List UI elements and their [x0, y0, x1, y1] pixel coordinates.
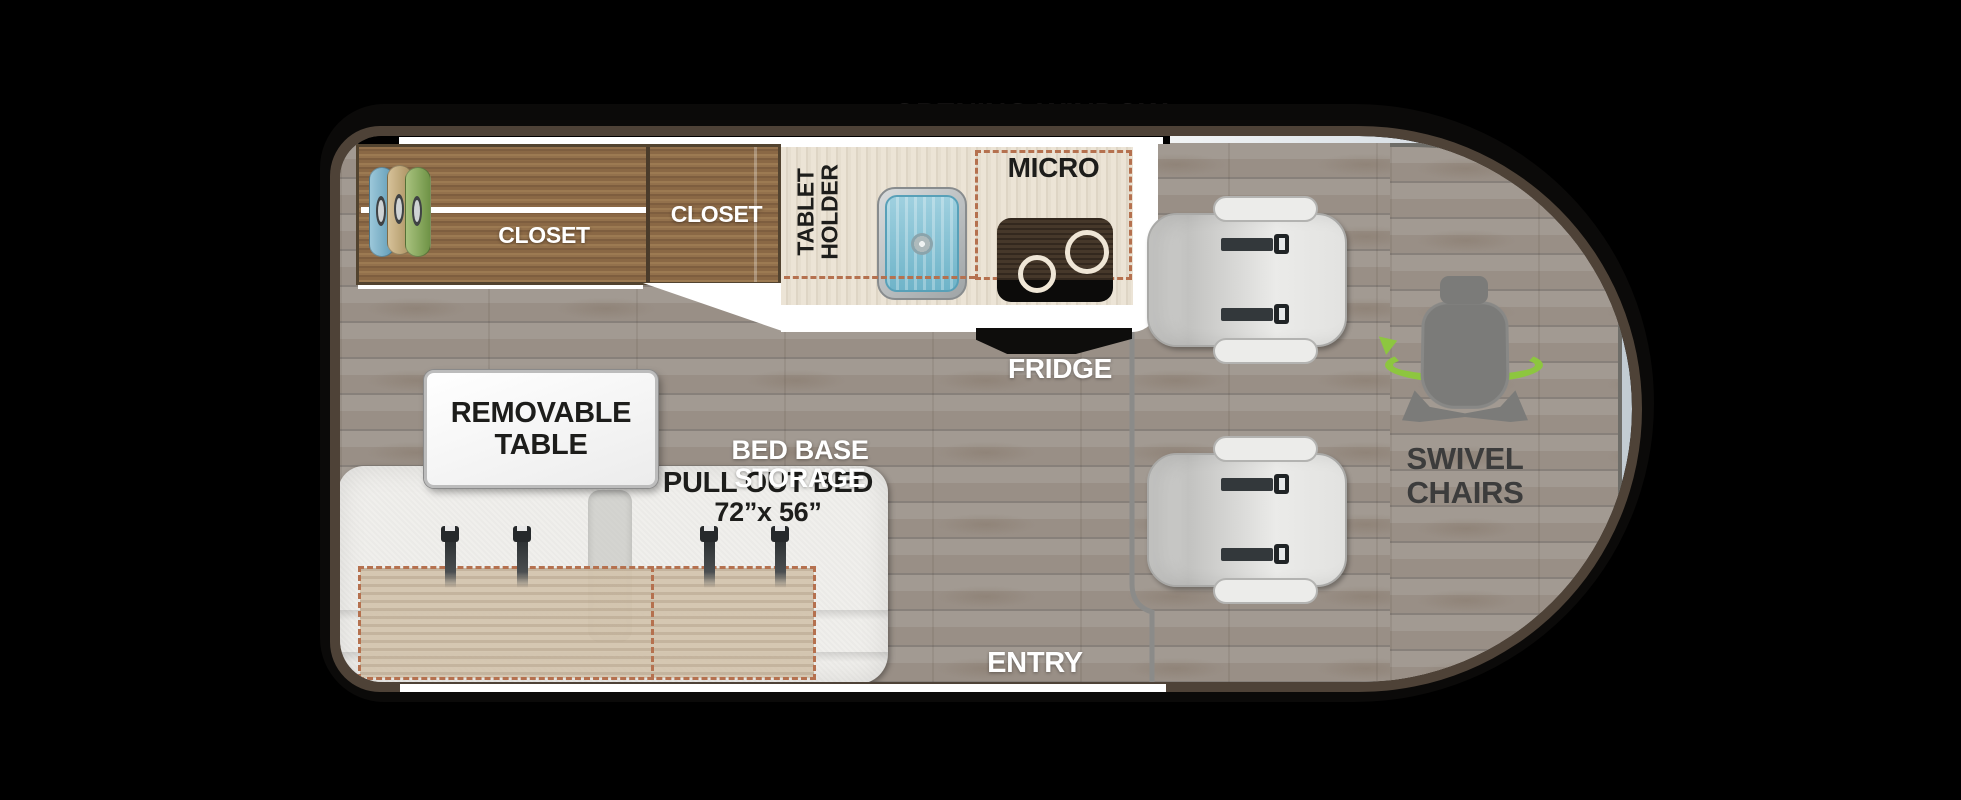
swivel-chairs-line1: SWIVEL [1390, 442, 1540, 476]
seatbelt-strap-icon [1221, 238, 1273, 251]
removable-table-sign: REMOVABLE TABLE [424, 370, 658, 488]
seatbelt-strap-icon [704, 542, 715, 588]
cab-seat [1147, 194, 1353, 366]
bed-base-storage-label: BED BASE STORAGE [665, 436, 935, 493]
floorplan-stage: OPENING WINDOW CLOSET [0, 0, 1961, 800]
counter-edge-dashed-line [784, 276, 975, 279]
seatbelt-strap-icon [517, 542, 528, 588]
seatbelt-icon [513, 523, 531, 588]
hanger-slot-icon [412, 196, 422, 226]
pull-out-bed: PULL OUT BED 72”x 56” [340, 466, 888, 682]
seat-armrest [1213, 338, 1318, 364]
entry-label: ENTRY [970, 648, 1100, 678]
table-sign-line2: TABLE [451, 429, 631, 461]
cooktop [997, 218, 1113, 302]
cooktop-front-panel [997, 280, 1113, 302]
cab-seat [1147, 434, 1353, 606]
swivel-chairs-label: SWIVEL CHAIRS [1390, 442, 1540, 510]
hanger-slot-icon [394, 194, 404, 224]
seatbelt-buckle-icon [700, 526, 718, 542]
closet-cabinet: CLOSET CLOSET [356, 144, 781, 285]
seat-armrest [1213, 436, 1318, 462]
bed-extension-dashed-outline [358, 566, 816, 680]
sink [877, 187, 967, 300]
seatbelt-icon [1221, 304, 1293, 324]
seat-armrest [1213, 196, 1318, 222]
seatbelt-buckle-icon [1274, 234, 1289, 254]
seatbelt-buckle-icon [1274, 304, 1289, 324]
seat-armrest [1213, 578, 1318, 604]
opening-window-strip [399, 137, 1163, 144]
burner-icon [1065, 230, 1109, 274]
seatbelt-icon [1221, 474, 1293, 494]
bed-extension-dashed-divider [651, 566, 654, 680]
swivel-chair-headrest-icon [1440, 276, 1488, 304]
fridge-label: FRIDGE [980, 354, 1140, 383]
seatbelt-buckle-icon [1274, 474, 1289, 494]
bed-size-label: 72”x 56” [658, 498, 878, 526]
seatbelt-buckle-icon [441, 526, 459, 542]
seatbelt-strap-icon [1221, 308, 1273, 321]
micro-label: MICRO [975, 153, 1132, 182]
sink-drain-icon [911, 233, 933, 255]
closet-right-label: CLOSET [659, 202, 774, 226]
seatbelt-strap-icon [1221, 548, 1273, 561]
burner-icon [1018, 255, 1056, 293]
seatbelt-strap-icon [775, 542, 786, 588]
seatbelt-buckle-icon [771, 526, 789, 542]
seatbelt-buckle-icon [513, 526, 531, 542]
tablet-holder-line2: HOLDER [818, 164, 842, 259]
seatbelt-icon [441, 523, 459, 588]
hanger-slot-icon [376, 196, 386, 226]
tablet-holder-label: TABLET HOLDER [792, 165, 844, 260]
van-interior: CLOSET CLOSET TABLET HOLDER MICRO [340, 136, 1632, 682]
table-sign-line1: REMOVABLE [451, 397, 631, 429]
seatbelt-icon [1221, 544, 1293, 564]
closet-left-label: CLOSET [479, 223, 609, 247]
seatbelt-icon [700, 523, 718, 588]
swivel-chair-icon [1420, 301, 1510, 408]
seatbelt-icon [771, 523, 789, 588]
closet-divider [646, 147, 650, 282]
seatbelt-buckle-icon [1274, 544, 1289, 564]
swivel-chairs-line2: CHAIRS [1390, 476, 1540, 510]
tablet-holder-line1: TABLET [793, 164, 817, 259]
seatbelt-strap-icon [1221, 478, 1273, 491]
seatbelt-strap-icon [445, 542, 456, 588]
closet-base-trim [358, 285, 643, 289]
hanger-icon [405, 167, 431, 257]
seatbelt-icon [1221, 234, 1293, 254]
entry-door-strip [400, 684, 1166, 692]
